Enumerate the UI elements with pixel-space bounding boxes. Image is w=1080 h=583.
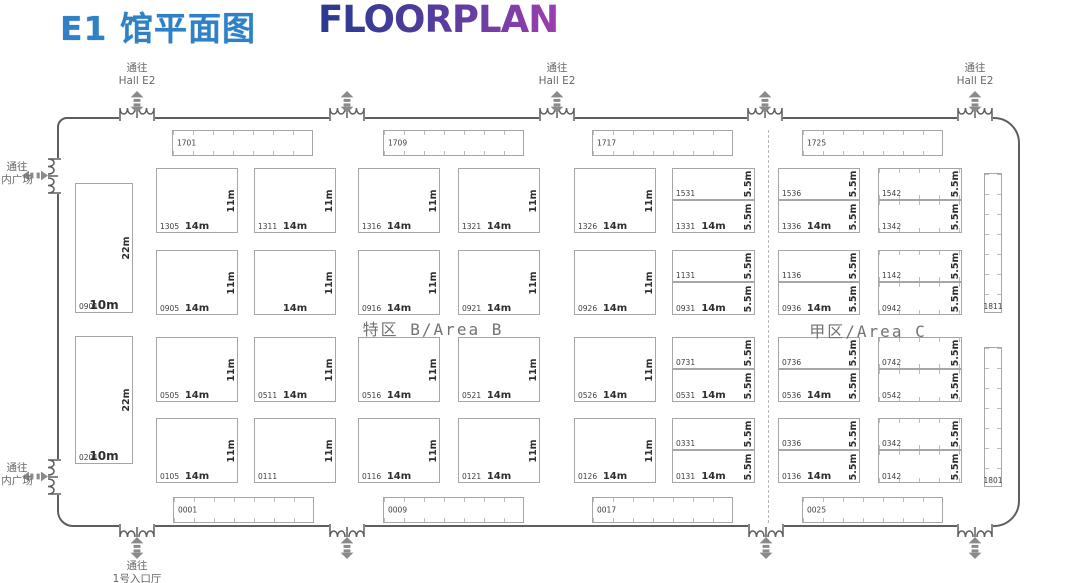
- booth-width-dimension: 14m: [487, 303, 511, 314]
- booth-height-dimension: 5.5m: [743, 171, 754, 198]
- booth-0901[interactable]: 090110m22m: [75, 183, 133, 313]
- booth-number: 0931: [676, 304, 695, 313]
- booth-0336[interactable]: 03365.5m: [778, 418, 860, 450]
- booth-1717[interactable]: 1717: [592, 130, 733, 156]
- booth-height-dimension: 11m: [324, 358, 335, 381]
- booth-height-dimension: 11m: [528, 189, 539, 212]
- booth-width-dimension: 14m: [185, 221, 209, 232]
- booth-subdivision-ticks: [997, 348, 1001, 486]
- booth-number: 0105: [160, 472, 179, 481]
- booth-subdivision-ticks: [384, 151, 523, 155]
- booth-number: 0916: [362, 304, 381, 313]
- booth-number: 1531: [676, 189, 695, 198]
- booth-width-dimension: 14m: [185, 303, 209, 314]
- booth-height-dimension: 11m: [226, 271, 237, 294]
- booth-number: 0742: [882, 358, 901, 367]
- booth-1542[interactable]: 15425.5m: [878, 168, 962, 200]
- booth-0942[interactable]: 09425.5m: [878, 282, 962, 315]
- booth-0121[interactable]: 012114m11m: [458, 418, 540, 483]
- two-way-vertical-arrow-icon: [130, 91, 144, 113]
- booth-0536[interactable]: 053614m5.5m: [778, 369, 860, 402]
- booth-width-dimension: 14m: [387, 390, 411, 401]
- booth-height-dimension: 11m: [528, 271, 539, 294]
- booth-subdivision-ticks: [879, 169, 961, 173]
- booth-number: 0731: [676, 358, 695, 367]
- booth-height-dimension: 5.5m: [743, 421, 754, 448]
- booth-1701[interactable]: 1701: [172, 130, 313, 156]
- booth-0505[interactable]: 050514m11m: [156, 337, 238, 402]
- booth-number: 0905: [160, 304, 179, 313]
- booth-0526[interactable]: 052614m11m: [574, 337, 656, 402]
- two-way-vertical-arrow-icon: [550, 91, 564, 113]
- booth-width-dimension: 14m: [807, 221, 831, 232]
- booth-height-dimension: 5.5m: [950, 171, 961, 198]
- booth-1131[interactable]: 11315.5m: [672, 250, 755, 282]
- booth-height-dimension: 5.5m: [848, 253, 859, 280]
- two-way-vertical-arrow-icon: [130, 537, 144, 559]
- booth-width-dimension: 14m: [603, 471, 627, 482]
- booth-height-dimension: 11m: [226, 358, 237, 381]
- booth-width-dimension: 14m: [283, 303, 307, 314]
- booth-1331[interactable]: 133114m5.5m: [672, 200, 755, 233]
- booth-0731[interactable]: 07315.5m: [672, 337, 755, 369]
- booth-width-dimension: 14m: [603, 390, 627, 401]
- booth-height-dimension: 5.5m: [848, 171, 859, 198]
- booth-height-dimension: 5.5m: [743, 203, 754, 230]
- booth-number: 1142: [882, 271, 901, 280]
- booth-subdivision-ticks: [593, 131, 732, 135]
- booth-subdivision-ticks: [173, 151, 312, 155]
- booth-0131[interactable]: 013114m5.5m: [672, 450, 755, 483]
- booth-0111[interactable]: 011111m: [254, 418, 336, 483]
- booth-height-dimension: 11m: [324, 439, 335, 462]
- booth-number: 1542: [882, 189, 901, 198]
- booth-height-dimension: 5.5m: [848, 285, 859, 312]
- booth-number: 1305: [160, 222, 179, 231]
- passage-label: 通往 内广场: [0, 161, 39, 187]
- booth-0105[interactable]: 010514m11m: [156, 418, 238, 483]
- booth-height-dimension: 5.5m: [743, 285, 754, 312]
- booth-number: 0936: [782, 304, 801, 313]
- booth-0936[interactable]: 093614m5.5m: [778, 282, 860, 315]
- booth-width-dimension: 10m: [89, 298, 118, 312]
- booth-height-dimension: 11m: [226, 439, 237, 462]
- booth-0136[interactable]: 013614m5.5m: [778, 450, 860, 483]
- booth-number: 0542: [882, 391, 901, 400]
- booth-number: 0116: [362, 472, 381, 481]
- booth-number: 1326: [578, 222, 597, 231]
- booth-0905[interactable]: 090514m11m: [156, 250, 238, 315]
- booth-number: 1342: [882, 222, 901, 231]
- booth-height-dimension: 11m: [324, 271, 335, 294]
- booth-number: 1321: [462, 222, 481, 231]
- booth-height-dimension: 5.5m: [743, 453, 754, 480]
- booth-number: 0926: [578, 304, 597, 313]
- booth-number: 1331: [676, 222, 695, 231]
- booth-0001[interactable]: 0001: [173, 497, 314, 523]
- booth-height-dimension: 11m: [428, 271, 439, 294]
- booth-width-dimension: 14m: [185, 471, 209, 482]
- booth-number: 0009: [388, 506, 407, 515]
- two-way-vertical-arrow-icon: [968, 91, 982, 113]
- booth-height-dimension: 5.5m: [848, 421, 859, 448]
- booth-unnumbered[interactable]: 14m11m: [254, 250, 336, 315]
- booth-1801[interactable]: 1801: [984, 347, 1002, 487]
- booth-number: 0921: [462, 304, 481, 313]
- booth-subdivision-ticks: [384, 498, 523, 502]
- booth-1725[interactable]: 1725: [802, 130, 943, 156]
- booth-0116[interactable]: 011614m11m: [358, 418, 440, 483]
- booth-height-dimension: 5.5m: [848, 340, 859, 367]
- booth-width-dimension: 14m: [487, 471, 511, 482]
- booth-subdivision-ticks: [803, 518, 942, 522]
- booth-0916[interactable]: 091614m11m: [358, 250, 440, 315]
- booth-subdivision-ticks: [879, 370, 961, 374]
- booth-1321[interactable]: 132114m11m: [458, 168, 540, 233]
- booth-0921[interactable]: 092114m11m: [458, 250, 540, 315]
- booth-number: 0536: [782, 391, 801, 400]
- booth-width-dimension: 14m: [603, 221, 627, 232]
- booth-number: 1725: [807, 139, 826, 148]
- booth-height-dimension: 5.5m: [950, 372, 961, 399]
- booth-subdivision-ticks: [173, 131, 312, 135]
- booth-width-dimension: 14m: [185, 390, 209, 401]
- booth-width-dimension: 14m: [487, 390, 511, 401]
- area-divider-dashed-line: [768, 130, 769, 523]
- booth-number: 0942: [882, 304, 901, 313]
- page-title-chinese: E1 馆平面图: [60, 2, 256, 50]
- booth-0521[interactable]: 052114m11m: [458, 337, 540, 402]
- booth-subdivision-ticks: [174, 518, 313, 522]
- booth-subdivision-ticks: [803, 131, 942, 135]
- booth-number: 1801: [983, 476, 1002, 485]
- booth-height-dimension: 11m: [428, 189, 439, 212]
- two-way-vertical-arrow-icon: [758, 91, 772, 113]
- booth-number: 0521: [462, 391, 481, 400]
- booth-subdivision-ticks: [997, 174, 1001, 312]
- booth-number: 0111: [258, 472, 277, 481]
- booth-0511[interactable]: 051114m11m: [254, 337, 336, 402]
- booth-width-dimension: 14m: [387, 221, 411, 232]
- booth-height-dimension: 11m: [428, 358, 439, 381]
- booth-number: 0136: [782, 472, 801, 481]
- booth-number: 0336: [782, 439, 801, 448]
- booth-1142[interactable]: 11425.5m: [878, 250, 962, 282]
- booth-subdivision-ticks: [593, 518, 732, 522]
- booth-0009[interactable]: 0009: [383, 497, 524, 523]
- booth-number: 0126: [578, 472, 597, 481]
- booth-number: 1311: [258, 222, 277, 231]
- booth-number: 1316: [362, 222, 381, 231]
- booth-height-dimension: 11m: [528, 358, 539, 381]
- booth-number: 1811: [983, 302, 1002, 311]
- booth-height-dimension: 5.5m: [743, 372, 754, 399]
- booth-height-dimension: 22m: [121, 388, 132, 411]
- booth-number: 0131: [676, 472, 695, 481]
- passage-label: 通往 1号入口厅: [87, 560, 187, 583]
- booth-height-dimension: 11m: [428, 439, 439, 462]
- booth-subdivision-ticks: [985, 348, 989, 486]
- booth-0342[interactable]: 03425.5m: [878, 418, 962, 450]
- booth-height-dimension: 11m: [226, 189, 237, 212]
- booth-0126[interactable]: 012614m11m: [574, 418, 656, 483]
- booth-1709[interactable]: 1709: [383, 130, 524, 156]
- booth-width-dimension: 14m: [701, 221, 725, 232]
- booth-height-dimension: 5.5m: [950, 421, 961, 448]
- booth-number: 0516: [362, 391, 381, 400]
- booth-1326[interactable]: 132614m11m: [574, 168, 656, 233]
- booth-number: 1709: [388, 139, 407, 148]
- booth-1311[interactable]: 131114m11m: [254, 168, 336, 233]
- booth-height-dimension: 5.5m: [743, 340, 754, 367]
- booth-number: 0017: [597, 506, 616, 515]
- booth-1342[interactable]: 13425.5m: [878, 200, 962, 233]
- booth-0931[interactable]: 093114m5.5m: [672, 282, 755, 315]
- booth-subdivision-ticks: [384, 518, 523, 522]
- booth-height-dimension: 5.5m: [743, 253, 754, 280]
- area-b-label: 特区 B/Area B: [363, 316, 504, 340]
- booth-width-dimension: 10m: [89, 449, 118, 463]
- area-c-label: 甲区/Area C: [809, 318, 926, 342]
- booth-subdivision-ticks: [879, 251, 961, 255]
- booth-subdivision-ticks: [879, 451, 961, 455]
- booth-width-dimension: 14m: [701, 303, 725, 314]
- booth-1536[interactable]: 15365.5m: [778, 168, 860, 200]
- booth-height-dimension: 11m: [644, 189, 655, 212]
- booth-number: 0526: [578, 391, 597, 400]
- booth-subdivision-ticks: [985, 174, 989, 312]
- booth-height-dimension: 5.5m: [950, 285, 961, 312]
- booth-width-dimension: 14m: [487, 221, 511, 232]
- booth-0926[interactable]: 092614m11m: [574, 250, 656, 315]
- booth-width-dimension: 14m: [283, 221, 307, 232]
- booth-number: 1336: [782, 222, 801, 231]
- booth-height-dimension: 5.5m: [950, 253, 961, 280]
- passage-label: 通往 Hall E2: [515, 62, 599, 88]
- passage-label: 通往 内广场: [0, 462, 39, 488]
- booth-height-dimension: 22m: [121, 236, 132, 259]
- booth-number: 0025: [807, 506, 826, 515]
- booth-0516[interactable]: 051614m11m: [358, 337, 440, 402]
- booth-0017[interactable]: 0017: [592, 497, 733, 523]
- booth-0531[interactable]: 053114m5.5m: [672, 369, 755, 402]
- booth-1136[interactable]: 11365.5m: [778, 250, 860, 282]
- booth-0025[interactable]: 0025: [802, 497, 943, 523]
- booth-height-dimension: 5.5m: [950, 203, 961, 230]
- booth-height-dimension: 11m: [528, 439, 539, 462]
- booth-0331[interactable]: 03315.5m: [672, 418, 755, 450]
- booth-subdivision-ticks: [174, 498, 313, 502]
- booth-height-dimension: 5.5m: [950, 340, 961, 367]
- booth-width-dimension: 14m: [387, 471, 411, 482]
- booth-0201[interactable]: 020110m22m: [75, 336, 133, 464]
- booth-1531[interactable]: 15315.5m: [672, 168, 755, 200]
- booth-number: 0331: [676, 439, 695, 448]
- booth-number: 1701: [177, 139, 196, 148]
- booth-height-dimension: 11m: [644, 358, 655, 381]
- two-way-vertical-arrow-icon: [340, 537, 354, 559]
- booth-width-dimension: 14m: [701, 390, 725, 401]
- booth-1316[interactable]: 131614m11m: [358, 168, 440, 233]
- booth-height-dimension: 5.5m: [950, 453, 961, 480]
- booth-height-dimension: 11m: [644, 271, 655, 294]
- booth-number: 0001: [178, 506, 197, 515]
- booth-number: 0342: [882, 439, 901, 448]
- booth-subdivision-ticks: [593, 498, 732, 502]
- booth-number: 0121: [462, 472, 481, 481]
- booth-subdivision-ticks: [879, 201, 961, 205]
- booth-number: 1136: [782, 271, 801, 280]
- booth-width-dimension: 14m: [283, 390, 307, 401]
- booth-width-dimension: 14m: [387, 303, 411, 314]
- booth-1811[interactable]: 1811: [984, 173, 1002, 313]
- booth-height-dimension: 5.5m: [848, 453, 859, 480]
- booth-number: 0531: [676, 391, 695, 400]
- booth-height-dimension: 5.5m: [848, 372, 859, 399]
- booth-1305[interactable]: 130514m11m: [156, 168, 238, 233]
- booth-height-dimension: 11m: [644, 439, 655, 462]
- two-way-vertical-arrow-icon: [340, 91, 354, 113]
- booth-number: 1717: [597, 139, 616, 148]
- booth-0542[interactable]: 05425.5m: [878, 369, 962, 402]
- booth-height-dimension: 5.5m: [848, 203, 859, 230]
- booth-subdivision-ticks: [803, 151, 942, 155]
- two-way-vertical-arrow-icon: [968, 537, 982, 559]
- booth-subdivision-ticks: [384, 131, 523, 135]
- passage-label: 通往 Hall E2: [95, 62, 179, 88]
- booth-subdivision-ticks: [879, 283, 961, 287]
- booth-1336[interactable]: 133614m5.5m: [778, 200, 860, 233]
- booth-width-dimension: 14m: [701, 471, 725, 482]
- booth-width-dimension: 14m: [807, 303, 831, 314]
- booth-number: 0736: [782, 358, 801, 367]
- booth-0142[interactable]: 01425.5m: [878, 450, 962, 483]
- floorplan-page: E1 馆平面图 FLOORPLAN 1701170917171725000100…: [0, 0, 1080, 583]
- booth-number: 0142: [882, 472, 901, 481]
- page-title-english: FLOORPLAN: [318, 0, 558, 41]
- booth-number: 0511: [258, 391, 277, 400]
- passage-label: 通往 Hall E2: [933, 62, 1017, 88]
- booth-subdivision-ticks: [593, 151, 732, 155]
- two-way-vertical-arrow-icon: [759, 537, 773, 559]
- booth-number: 1536: [782, 189, 801, 198]
- booth-width-dimension: 14m: [603, 303, 627, 314]
- booth-subdivision-ticks: [803, 498, 942, 502]
- booth-number: 1131: [676, 271, 695, 280]
- booth-subdivision-ticks: [879, 419, 961, 423]
- booth-number: 0505: [160, 391, 179, 400]
- booth-width-dimension: 14m: [807, 471, 831, 482]
- booth-width-dimension: 14m: [807, 390, 831, 401]
- booth-height-dimension: 11m: [324, 189, 335, 212]
